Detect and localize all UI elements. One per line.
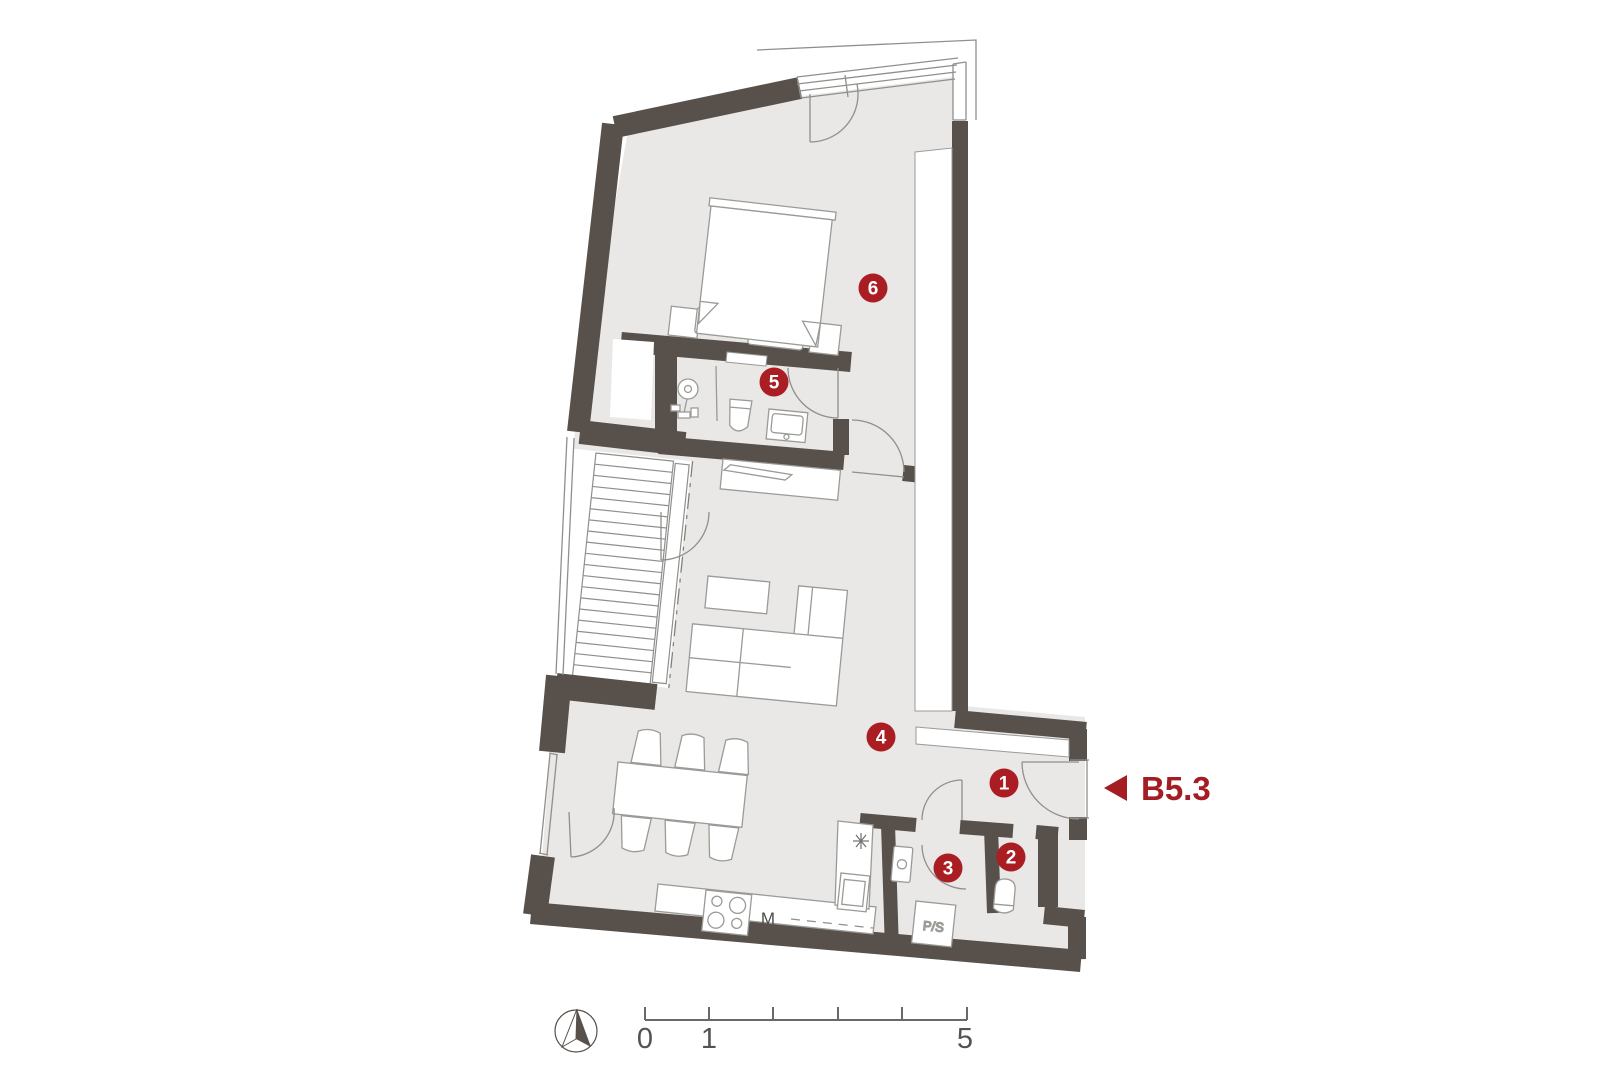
room-marker-1: 1 [990, 769, 1019, 798]
toilet-wc [993, 878, 1016, 914]
washer-dryer: P/S [912, 901, 956, 947]
wall-step-top [955, 719, 1086, 731]
floor-plan-drawing: P/S 1 2 3 4 5 6 M [0, 0, 1613, 1080]
svg-text:5: 5 [769, 373, 780, 394]
floor-plan-page: P/S 1 2 3 4 5 6 M [0, 0, 1613, 1080]
unit-label-group: B5.3 [1104, 770, 1211, 807]
shaft-niche [610, 339, 654, 420]
toilet [727, 399, 752, 432]
room-marker-3: 3 [934, 854, 963, 883]
unit-direction-arrow-icon [1104, 775, 1127, 801]
dishwasher-label: M [761, 909, 775, 928]
svg-text:3: 3 [943, 859, 954, 880]
wall-stair-bottom [556, 686, 656, 697]
svg-text:2: 2 [1006, 848, 1017, 869]
scale-bar: 0 1 5 [637, 1007, 973, 1055]
scale-label-5: 5 [957, 1023, 973, 1055]
washer-dryer-label: P/S [922, 918, 945, 935]
unit-code-label: B5.3 [1141, 770, 1211, 807]
svg-text:6: 6 [868, 279, 879, 300]
svg-text:4: 4 [876, 728, 887, 749]
north-arrow-icon [555, 1009, 597, 1052]
room-marker-4: 4 [867, 723, 896, 752]
scale-label-1: 1 [701, 1023, 717, 1055]
svg-text:1: 1 [999, 774, 1010, 795]
room-marker-2: 2 [997, 843, 1026, 872]
wall-kitchen-utility [888, 824, 892, 950]
room-marker-6: 6 [859, 274, 888, 303]
kitchen-sink [837, 873, 870, 912]
stairs [537, 447, 693, 688]
void-strip [915, 148, 952, 711]
wall-hall-c [1036, 832, 1058, 834]
stove [702, 890, 752, 936]
coffee-table [705, 576, 770, 614]
room-marker-5: 5 [760, 368, 789, 397]
washbasin [766, 409, 808, 443]
scale-label-0: 0 [637, 1023, 653, 1055]
washbasin-small [891, 846, 913, 883]
